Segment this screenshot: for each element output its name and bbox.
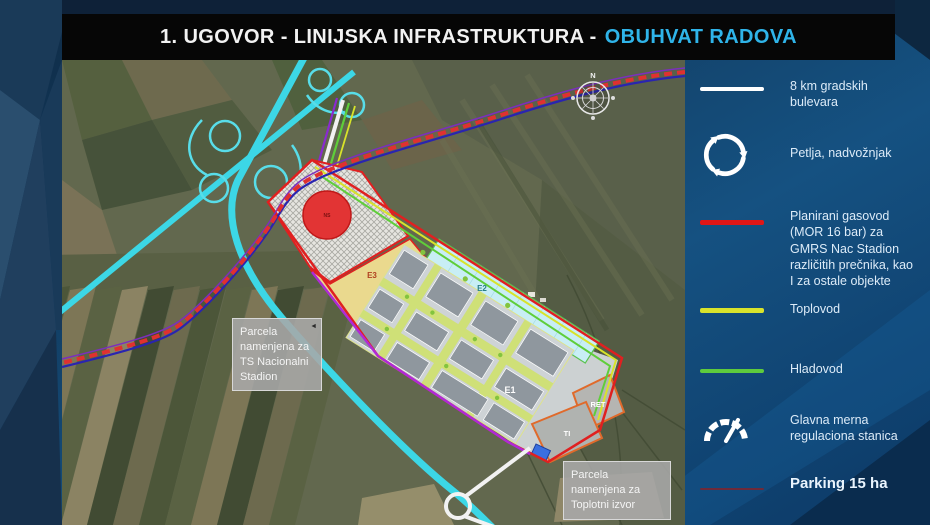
legend-item-label: Petlja, nadvožnjak [790,145,915,161]
callout-text: Parcela namenjena za TS Nacionalni Stadi… [240,326,309,383]
map-panel: NS [62,60,685,525]
satellite-map: NS [62,60,685,525]
slide: 1. UGOVOR - LINIJSKA INFRASTRUKTURA - OB… [0,0,930,525]
title-highlight: OBUHVAT RADOVA [605,26,797,49]
callout-toplotni-izvor: Parcela namenjena za Toplotni izvor [563,461,671,520]
hladovod-line-symbol [700,369,764,373]
legend-item-label: Toplovod [790,301,915,317]
legend-item-label: 8 km gradskih bulevara [790,78,915,111]
gasovod-line-symbol [700,220,764,225]
legend-item-label: Parking 15 ha [790,474,930,494]
toplovod-line-symbol [700,308,764,313]
legend-item-label: Glavna merna regulaciona stanica [790,412,915,445]
compass-label: N [590,71,595,80]
zone-e3-label: E3 [367,271,377,280]
title-text: 1. UGOVOR - LINIJSKA INFRASTRUKTURA - [160,26,597,49]
title-bar: 1. UGOVOR - LINIJSKA INFRASTRUKTURA - OB… [62,14,895,60]
callout-ts-stadion: Parcela namenjena za TS Nacionalni Stadi… [232,318,322,391]
parking-line-symbol [700,488,764,490]
legend-panel: 8 km gradskih bulevara Petlja, nadvožnja… [685,60,930,525]
loop-arrows-icon [698,128,752,182]
parcel-ti-label: TI [564,429,571,438]
gauge-icon [701,404,751,448]
legend-item-label: Hladovod [790,361,915,377]
callout-pointer-icon: ◄ [310,323,317,330]
stadium-circle-label: NS [324,213,332,219]
zone-e2-label: E2 [477,284,487,293]
parcel-ret-label: RET [591,400,606,409]
legend-item-label: Planirani gasovod (MOR 16 bar) za GMRS N… [790,208,915,289]
road-line-symbol [700,87,764,91]
callout-text: Parcela namenjena za Toplotni izvor [571,469,640,511]
zone-e1-label: E1 [504,385,515,395]
